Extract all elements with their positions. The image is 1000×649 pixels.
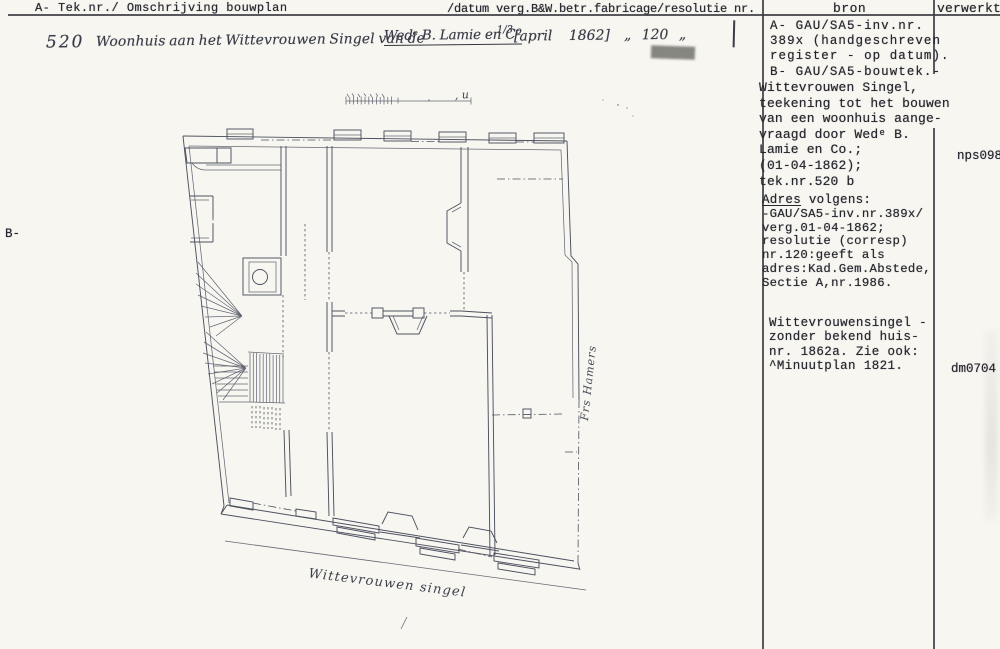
stairs: [196, 258, 285, 430]
bron-source-block-continued: Wittevrouwen Singel,teekening tot het bo…: [759, 80, 950, 189]
handwritten-entry-row: 520 Woonhuis aan het Wittevrouwen Singel…: [0, 20, 760, 64]
bron-street-note-block: Wittevrouwensingel -zonder bekend huis-n…: [769, 316, 927, 374]
outer-walls: [183, 136, 586, 590]
entry-description: Woonhuis aan het Wittevrouwen Singel van…: [96, 31, 425, 50]
column-header-verwerkt: verwerkt: [937, 1, 1000, 16]
bron-source-block: A- GAU/SA5-inv.nr.389x (handgeschrevenre…: [770, 19, 950, 80]
scale-unit-handwriting: , u: [454, 88, 469, 102]
address-title-underlined: Adres: [762, 193, 801, 207]
margin-marker-b: B-: [5, 227, 20, 241]
scan-streak: [985, 330, 998, 520]
archive-record-sheet: A- Tek.nr./ Omschrijving bouwplan /datum…: [0, 0, 1000, 649]
address-title-rest: volgens:: [801, 193, 871, 207]
ink-smudge: [651, 45, 695, 60]
drawing-number: 520: [46, 32, 85, 52]
entry-end-stroke: [733, 20, 735, 47]
header-label-left: A- Tek.nr./ Omschrijving bouwplan: [35, 1, 288, 15]
facade-windows-top: [227, 129, 564, 143]
bron-address-block: -GAU/SA5-inv.nr.389x/verg.01-04-1862;res…: [762, 208, 931, 290]
scale-bar: , u: [346, 88, 471, 104]
interior-walls: [281, 146, 577, 556]
verwerkt-code-2: dm0704: [951, 362, 996, 376]
column-header-bron: bron: [833, 1, 866, 16]
top-left-room: [185, 148, 281, 242]
facade-openings-street: [230, 498, 539, 575]
header-label-right: /datum verg.B&W.betr.fabricage/resolutie…: [447, 2, 755, 16]
column-divider-verwerkt-bottom: [933, 128, 935, 649]
entry-date: [april 1862]: [514, 28, 610, 45]
bron-address-title: Adres volgens:: [762, 193, 871, 207]
floor-plan-drawing: , u: [140, 78, 645, 648]
entry-fraction: 1/3: [497, 25, 513, 36]
verwerkt-code-1: nps098a: [957, 149, 1000, 163]
fireplace-niches: [389, 203, 461, 334]
resolution-number: „ 120 „: [624, 27, 686, 44]
